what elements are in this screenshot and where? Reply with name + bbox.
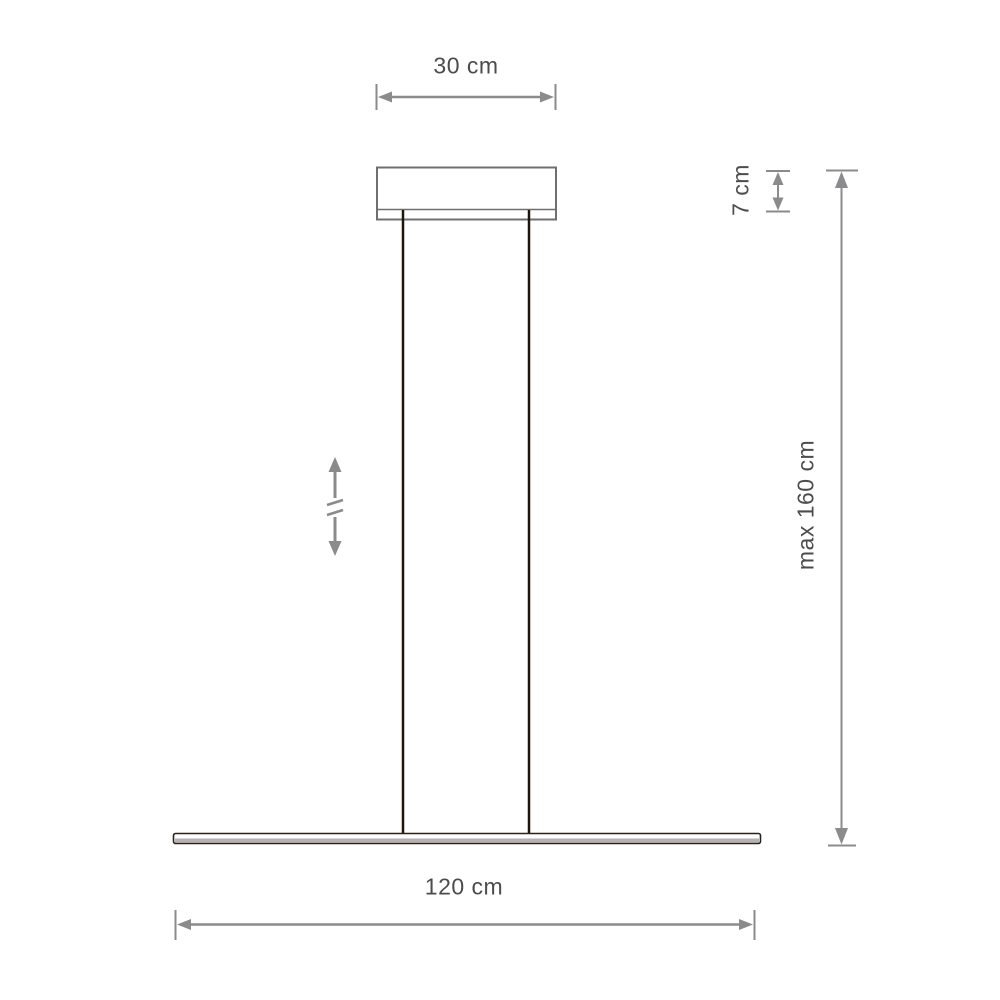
canopy-height-label: 7 cm <box>728 164 755 216</box>
fixture-length-label: 120 cm <box>425 874 503 901</box>
canopy-width-dimension <box>377 84 556 110</box>
break-line-upper <box>327 500 343 505</box>
max-height-label: max 160 cm <box>793 440 820 570</box>
max-height-dimension <box>826 171 858 846</box>
arrowhead-up-icon <box>773 172 784 185</box>
diagram-drawing <box>0 0 1000 1000</box>
arrowhead-left-icon <box>177 919 191 930</box>
arrowhead-up-icon <box>835 172 848 189</box>
lamp-dimension-diagram: 30 cm 7 cm max 160 cm 120 cm <box>0 0 1000 1000</box>
canopy-width-label: 30 cm <box>433 53 498 80</box>
arrowhead-right-icon <box>540 92 554 103</box>
arrowhead-left-icon <box>378 92 392 103</box>
bar-shade <box>175 839 759 843</box>
arrowhead-right-icon <box>739 919 753 930</box>
arrowhead-down-icon <box>329 541 342 556</box>
fixture-length-dimension <box>176 910 755 940</box>
height-adjustable-icon <box>327 457 343 556</box>
arrowhead-down-icon <box>773 198 784 211</box>
arrowhead-up-icon <box>329 457 342 472</box>
canopy-height-dimension <box>766 171 790 212</box>
arrowhead-down-icon <box>835 828 848 845</box>
break-line-lower <box>327 510 343 515</box>
lamp-bar <box>174 834 761 844</box>
